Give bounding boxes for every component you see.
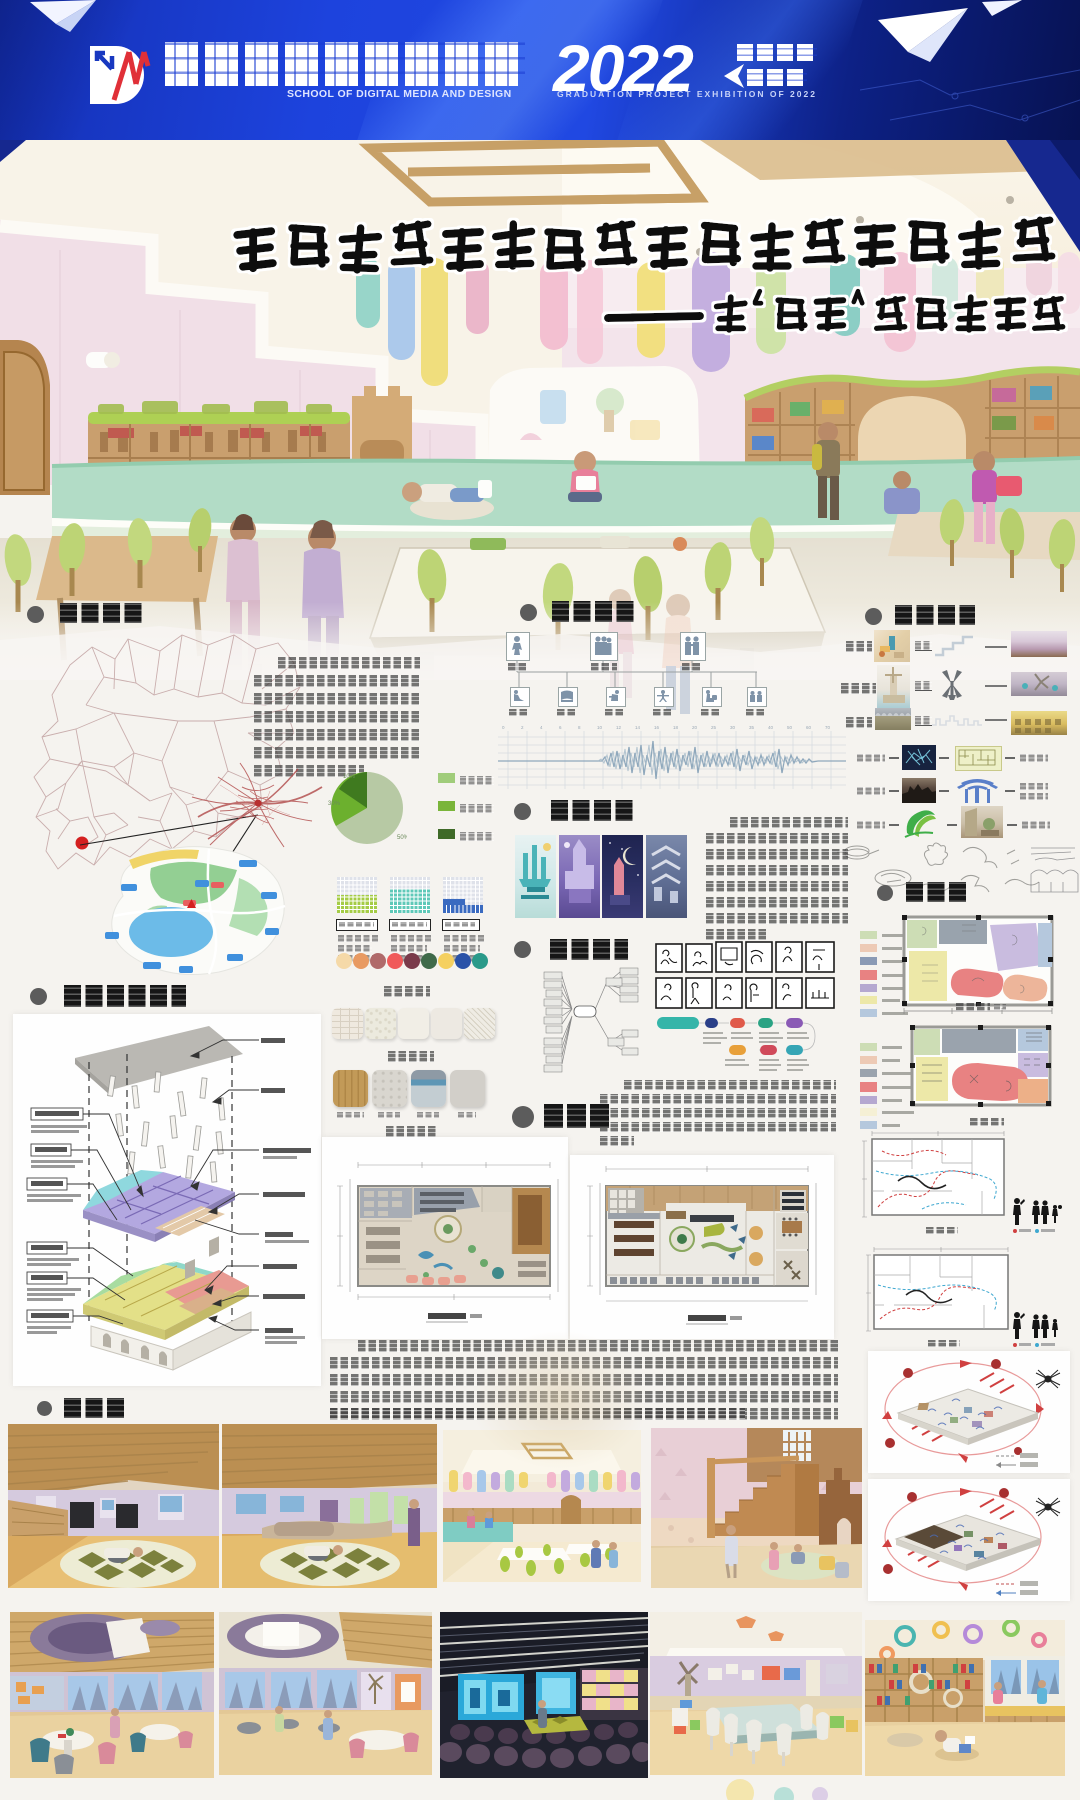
svg-text:12: 12 <box>616 725 622 730</box>
svg-text:60: 60 <box>806 725 812 730</box>
svg-text:10: 10 <box>597 725 603 730</box>
svg-text:4: 4 <box>540 725 543 730</box>
svg-text:30%: 30% <box>328 801 341 807</box>
svg-text:25: 25 <box>711 725 717 730</box>
svg-text:35: 35 <box>749 725 755 730</box>
svg-text:30: 30 <box>730 725 736 730</box>
svg-text:20: 20 <box>692 725 698 730</box>
svg-text:14: 14 <box>635 725 641 730</box>
svg-text:50%: 50% <box>397 835 407 841</box>
svg-text:10%: 10% <box>343 774 356 780</box>
svg-text:50: 50 <box>787 725 793 730</box>
svg-text:40: 40 <box>768 725 774 730</box>
svg-text:0: 0 <box>502 725 505 730</box>
svg-text:16: 16 <box>654 725 660 730</box>
svg-text:18: 18 <box>673 725 679 730</box>
svg-text:6: 6 <box>559 725 562 730</box>
svg-text:70: 70 <box>825 725 831 730</box>
svg-text:2: 2 <box>521 725 524 730</box>
svg-text:8: 8 <box>578 725 581 730</box>
